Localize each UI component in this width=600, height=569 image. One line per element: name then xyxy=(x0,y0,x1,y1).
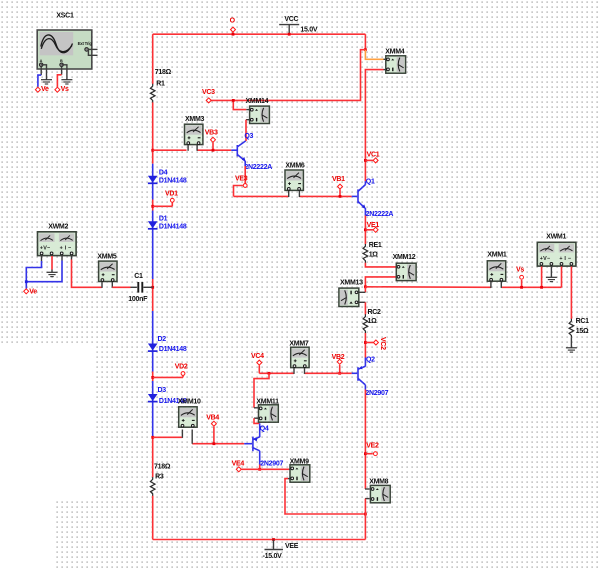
svg-text:XMM4: XMM4 xyxy=(385,49,404,56)
svg-text:Q2: Q2 xyxy=(366,357,375,364)
svg-text:D1N4148: D1N4148 xyxy=(159,346,187,353)
svg-text:VB1: VB1 xyxy=(332,176,345,183)
svg-text:XWM1: XWM1 xyxy=(546,234,566,241)
svg-text:15.0V: 15.0V xyxy=(300,27,318,34)
svg-text:R3: R3 xyxy=(155,474,164,481)
svg-text:2N2907: 2N2907 xyxy=(365,390,388,397)
svg-text:RC2: RC2 xyxy=(368,309,382,316)
svg-text:VEE: VEE xyxy=(285,543,299,550)
svg-text:XMM13: XMM13 xyxy=(340,279,363,286)
svg-text:C1: C1 xyxy=(134,273,143,280)
svg-text:B: B xyxy=(60,59,63,63)
svg-text:A: A xyxy=(40,59,43,63)
svg-text:718Ω: 718Ω xyxy=(154,464,171,471)
svg-text:D4: D4 xyxy=(159,170,168,177)
svg-text:Q4: Q4 xyxy=(260,426,269,433)
svg-text:VD1: VD1 xyxy=(165,191,178,198)
svg-text:D3: D3 xyxy=(158,387,167,394)
svg-text:718Ω: 718Ω xyxy=(155,69,172,76)
svg-text:XMM11: XMM11 xyxy=(256,398,279,405)
svg-text:Q3: Q3 xyxy=(244,133,253,140)
svg-text:1Ω: 1Ω xyxy=(368,318,378,325)
svg-text:XMM6: XMM6 xyxy=(285,163,304,170)
svg-text:Ve: Ve xyxy=(29,289,37,296)
svg-text:XMM8: XMM8 xyxy=(369,479,388,486)
svg-text:XMM10: XMM10 xyxy=(178,398,201,405)
svg-text:VD2: VD2 xyxy=(175,364,188,371)
svg-text:XMM12: XMM12 xyxy=(393,254,416,261)
svg-text:VB4: VB4 xyxy=(206,414,219,421)
svg-text:Q1: Q1 xyxy=(366,178,375,185)
svg-text:VE1: VE1 xyxy=(367,222,380,229)
svg-text:RC1: RC1 xyxy=(576,318,590,325)
svg-text:2N2222A: 2N2222A xyxy=(366,211,394,218)
svg-text:+V−: +V− xyxy=(40,245,51,251)
svg-text:XWM2: XWM2 xyxy=(48,223,68,230)
svg-text:XSC1: XSC1 xyxy=(56,12,74,19)
svg-text:XMM14: XMM14 xyxy=(246,98,269,105)
svg-text:+ I −: + I − xyxy=(60,245,72,251)
svg-text:+ I −: + I − xyxy=(559,256,571,262)
svg-text:VE3: VE3 xyxy=(235,176,248,183)
svg-text:VB3: VB3 xyxy=(205,129,218,136)
svg-text:D2: D2 xyxy=(158,336,167,343)
svg-text:VCC: VCC xyxy=(284,16,298,23)
svg-text:2N2222A: 2N2222A xyxy=(244,164,272,171)
svg-text:XMM7: XMM7 xyxy=(289,340,308,347)
svg-text:+V−: +V− xyxy=(540,256,551,262)
svg-text:-15.0V: -15.0V xyxy=(263,553,283,560)
svg-text:2N2907: 2N2907 xyxy=(260,460,283,467)
svg-text:1Ω: 1Ω xyxy=(369,251,379,258)
svg-text:RE1: RE1 xyxy=(369,242,382,249)
svg-text:VB2: VB2 xyxy=(332,354,345,361)
svg-text:XMM1: XMM1 xyxy=(487,252,506,259)
svg-text:XMM5: XMM5 xyxy=(97,253,116,260)
svg-text:15Ω: 15Ω xyxy=(576,328,589,335)
svg-text:VE2: VE2 xyxy=(366,443,379,450)
svg-text:VE4: VE4 xyxy=(232,460,245,467)
svg-text:O: O xyxy=(230,18,236,25)
svg-text:D1N4148: D1N4148 xyxy=(159,223,187,230)
svg-text:Ext Trig: Ext Trig xyxy=(78,41,93,46)
svg-text:D1: D1 xyxy=(159,215,168,222)
svg-text:XMM3: XMM3 xyxy=(185,116,204,123)
svg-text:Vs: Vs xyxy=(516,267,524,274)
svg-text:VC4: VC4 xyxy=(251,353,264,360)
svg-text:100nF: 100nF xyxy=(128,296,148,303)
svg-text:VC2: VC2 xyxy=(379,337,386,350)
svg-text:Vs: Vs xyxy=(61,86,69,93)
svg-text:VC1: VC1 xyxy=(367,152,380,159)
svg-text:XMM9: XMM9 xyxy=(290,458,309,465)
svg-text:R1: R1 xyxy=(156,80,165,87)
svg-text:Ve: Ve xyxy=(41,86,49,93)
svg-text:VC3: VC3 xyxy=(202,89,215,96)
svg-text:D1N4148: D1N4148 xyxy=(159,178,187,185)
